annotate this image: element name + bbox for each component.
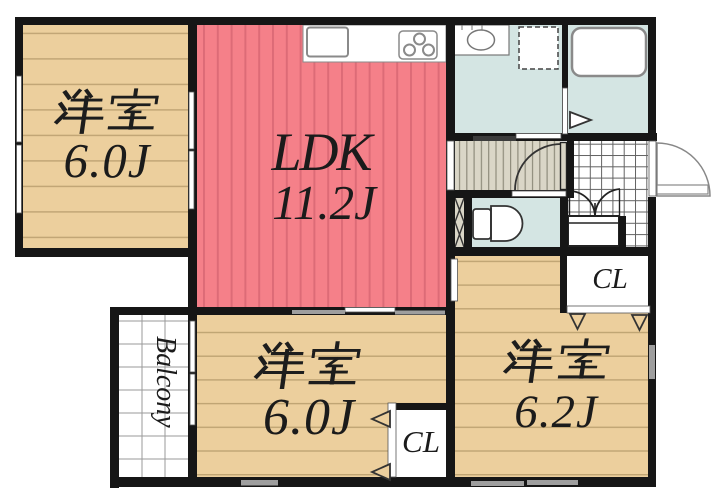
svg-text:6.2J: 6.2J bbox=[514, 386, 599, 438]
svg-text:CL: CL bbox=[592, 263, 627, 295]
svg-text:11.2J: 11.2J bbox=[272, 175, 378, 230]
svg-text:6.0J: 6.0J bbox=[263, 389, 357, 446]
svg-text:6.0J: 6.0J bbox=[64, 133, 152, 188]
svg-text:Balcony: Balcony bbox=[150, 336, 181, 428]
svg-text:CL: CL bbox=[402, 424, 440, 459]
svg-text:LDK: LDK bbox=[270, 122, 375, 182]
